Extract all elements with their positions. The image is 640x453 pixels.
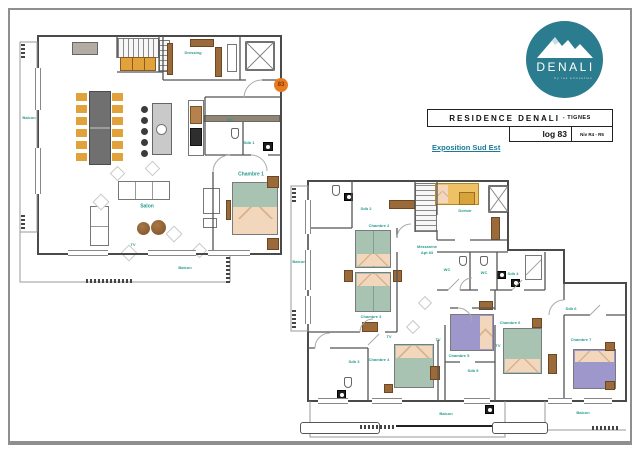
- tv-unit: [226, 200, 231, 220]
- window: [68, 250, 108, 256]
- window: [148, 250, 196, 256]
- label-sdb2: Sdb 2: [361, 207, 372, 211]
- duct: [227, 44, 237, 72]
- balcony-railing: [360, 425, 396, 429]
- washbasin: [263, 142, 273, 151]
- logo-name: DENALI: [536, 60, 594, 74]
- exposition-label: Exposition Sud Est: [432, 143, 500, 152]
- toilet: [459, 256, 467, 266]
- window: [464, 398, 490, 404]
- nightstand: [532, 318, 542, 328]
- label-tv-a: TV: [386, 335, 391, 339]
- wardrobe: [167, 43, 173, 75]
- nightstand: [430, 366, 440, 380]
- staircase: [415, 183, 437, 232]
- stool: [141, 128, 148, 135]
- label-salon: Salon: [140, 205, 154, 210]
- label-chambre3: Chambre 3: [361, 315, 382, 319]
- dining-chairs-left: [76, 93, 87, 165]
- title-block-row1: RESIDENCE DENALI - TIGNES: [427, 109, 613, 127]
- balcony-planter: [492, 422, 548, 434]
- balcony-railing: [292, 308, 296, 328]
- floorplan-page: DENALI by les etincelles RESIDENCE DENAL…: [0, 0, 640, 453]
- twin-beds-chambre3: [355, 272, 391, 312]
- balcony-divider: [226, 257, 230, 283]
- wardrobe: [215, 47, 222, 77]
- label-mezzanine-2: Apt 83: [421, 251, 433, 255]
- residence-title: RESIDENCE DENALI: [449, 114, 560, 123]
- window: [35, 148, 41, 194]
- label-chambre2: Chambre 2: [369, 224, 390, 228]
- label-sdb3: Sdb 3: [349, 360, 360, 364]
- mountain-icon: [536, 33, 594, 59]
- balcony-railing: [21, 213, 25, 229]
- toilet: [480, 256, 488, 266]
- label-balcon-bottom-b: Balcon: [576, 411, 589, 415]
- label-balcon-left-upper: Balcon: [22, 116, 35, 120]
- lot-number: log 83: [510, 127, 571, 141]
- washbasin: [344, 193, 353, 201]
- label-dressing: Dressing: [184, 51, 201, 55]
- label-wc-a: WC: [444, 268, 451, 272]
- washbasin: [497, 271, 506, 279]
- stool: [141, 150, 148, 157]
- side-table: [203, 218, 217, 228]
- balcony-railing: [592, 426, 620, 430]
- nightstand: [605, 342, 615, 351]
- label-sdb4: Sdb 4: [508, 272, 519, 276]
- window: [548, 398, 572, 404]
- label-wc-b: WC: [481, 271, 488, 275]
- pouf: [151, 220, 166, 235]
- label-chambre1: Chambre 1: [238, 173, 264, 178]
- nightstand: [393, 270, 402, 282]
- label-chambre5: Chambre 5: [449, 354, 470, 358]
- label-chambre4: Chambre 4: [369, 358, 390, 362]
- level-indicator: Niv R4 - R5: [571, 127, 612, 141]
- stool: [141, 106, 148, 113]
- armchair: [203, 188, 220, 214]
- label-tv-upper: TV: [130, 243, 135, 247]
- title-block-row2: log 83 Niv R4 - R5: [509, 126, 613, 142]
- kitchen-cabinet: [190, 106, 202, 124]
- shower: [525, 255, 542, 280]
- label-chambre7: Chambre 7: [571, 338, 592, 342]
- label-mezzanine-1: Mezzanine: [417, 245, 437, 249]
- label-balcon-bottom-a: Balcon: [439, 412, 452, 416]
- label-sdb6: Sdb 6: [566, 307, 577, 311]
- nightstand: [384, 384, 393, 393]
- pouf: [137, 222, 150, 235]
- label-dortoir: Dortoir: [458, 209, 471, 213]
- sofa-large: [118, 181, 170, 200]
- cabinet: [72, 42, 98, 55]
- bed-chambre1: [232, 182, 278, 235]
- nightstand: [267, 176, 279, 188]
- washbasin: [485, 405, 494, 414]
- oven: [190, 128, 202, 146]
- balcony-railing: [86, 279, 134, 283]
- dining-table: [89, 91, 111, 165]
- washbasin: [511, 279, 520, 287]
- orange-cabinets: [120, 57, 156, 71]
- toilet: [231, 128, 239, 139]
- nightstand: [605, 381, 615, 390]
- label-tv-b: TV: [435, 338, 440, 342]
- label-sdb1: Sdb 1: [244, 141, 255, 145]
- stool: [141, 117, 148, 124]
- twin-beds-chambre2: [355, 230, 391, 268]
- apartment-door-badge: 83: [274, 78, 288, 92]
- bed-chambre4: [394, 344, 434, 388]
- wardrobe: [479, 301, 493, 310]
- label-balcon-bottom-upper: Balcon: [178, 266, 191, 270]
- residence-location: - TIGNES: [563, 115, 591, 121]
- tv-cabinet: [548, 354, 557, 374]
- logo-tagline: by les etincelles: [554, 76, 592, 80]
- sofa-small: [90, 206, 109, 246]
- kitchen-sink: [156, 124, 167, 135]
- window: [35, 68, 41, 110]
- wardrobe: [190, 39, 214, 47]
- label-chambre6: Chambre 6: [500, 321, 521, 325]
- bench: [389, 200, 415, 209]
- wall-band: [204, 115, 280, 122]
- window: [372, 398, 402, 404]
- nightstand: [267, 238, 279, 250]
- window: [318, 398, 348, 404]
- nightstand: [344, 270, 353, 282]
- wardrobe: [491, 217, 500, 240]
- balcony-edge: [396, 425, 494, 427]
- denali-logo: DENALI by les etincelles: [526, 21, 603, 98]
- window: [305, 200, 311, 234]
- window: [305, 296, 311, 324]
- staircase: [117, 38, 159, 58]
- label-tv-c: TV: [495, 344, 500, 348]
- toilet: [332, 185, 340, 196]
- label-sdb5: Sdb 5: [468, 369, 479, 373]
- bed-chambre5: [450, 314, 494, 351]
- label-wc-upper: WC: [227, 118, 234, 122]
- balcony-railing: [21, 44, 25, 58]
- label-balcon-left-lower: Balcon: [292, 260, 305, 264]
- stool: [141, 139, 148, 146]
- window: [305, 250, 311, 290]
- desk-dortoir: [459, 192, 475, 205]
- bed-chambre6: [503, 328, 542, 374]
- window: [208, 250, 250, 256]
- balcony-railing: [292, 188, 296, 202]
- dining-chairs-right: [112, 93, 123, 165]
- toilet: [344, 377, 352, 388]
- window: [584, 398, 612, 404]
- sideboard: [362, 322, 378, 332]
